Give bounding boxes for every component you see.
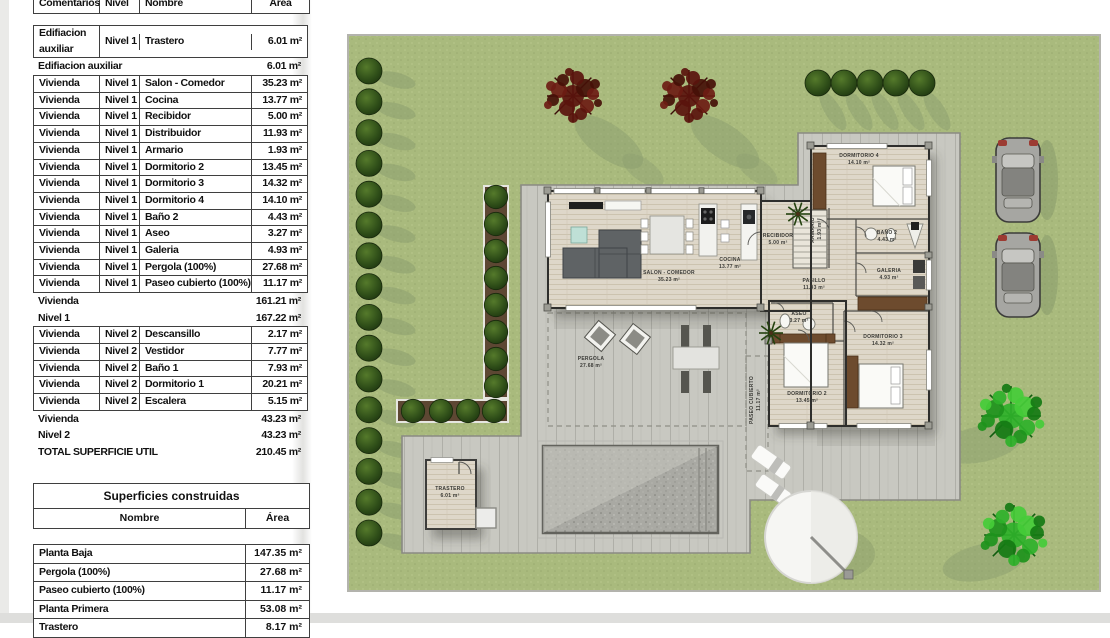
page-edge-left: [0, 0, 9, 623]
table-row: ViviendaNivel 1Armario1.93 m²: [34, 142, 307, 159]
col-area: Área: [252, 0, 309, 13]
table-cell: Galeria: [140, 243, 252, 259]
table-cell: Aseo: [140, 226, 252, 242]
table-cell: Descansillo: [140, 327, 252, 343]
table-cell: Nivel 1: [100, 93, 140, 109]
table-cell: Vivienda: [34, 226, 100, 242]
col-area: Área: [246, 509, 309, 528]
table-cell: Vivienda: [34, 276, 100, 292]
table-cell: Dormitorio 2: [140, 160, 252, 176]
table-cell: Vivienda: [34, 344, 100, 360]
table-cell: Baño 1: [140, 361, 252, 377]
constructed-table-header: Superficies construidas Nombre Área: [33, 483, 310, 529]
table-row: ViviendaNivel 2Descansillo2.17 m²: [34, 327, 307, 343]
table-group: ViviendaNivel 1Salon - Comedor35.23 m²Vi…: [33, 75, 308, 293]
table-cell: Vivienda: [34, 176, 100, 192]
table-cell: 5.00 m²: [252, 109, 309, 125]
table-cell: Nivel 1: [100, 210, 140, 226]
constructed-table-title: Superficies construidas: [34, 484, 309, 509]
table-cell: Dormitorio 4: [140, 193, 252, 209]
subtotal-label: Nivel 2: [33, 427, 251, 444]
table-cell: 4.93 m²: [252, 243, 309, 259]
site-plan: SALON - COMEDOR35.23 m² COCINA13.77 m² R…: [347, 34, 1101, 592]
table-cell: Vestidor: [140, 344, 252, 360]
table-row: Trastero8.17 m²: [34, 618, 309, 637]
table-cell: 8.17 m²: [246, 619, 309, 637]
subtotal-value: 43.23 m²: [251, 411, 308, 428]
table-cell: Dormitorio 3: [140, 176, 252, 192]
table-cell: 147.35 m²: [246, 545, 309, 563]
table-cell: Nivel 1: [100, 193, 140, 209]
table-cell: Nivel 1: [100, 76, 140, 92]
table-group: Edifiacion auxiliarNivel 1Trastero6.01 m…: [33, 25, 308, 58]
table-row: Pergola (100%)27.68 m²: [34, 563, 309, 582]
table-cell: Baño 2: [140, 210, 252, 226]
table-cell: Vivienda: [34, 377, 100, 393]
table-cell: Nivel 1: [100, 109, 140, 125]
table-cell: Vivienda: [34, 243, 100, 259]
table-group: ViviendaNivel 2Descansillo2.17 m²Viviend…: [33, 326, 308, 411]
table-cell: 13.77 m²: [252, 93, 309, 109]
table-cell: 6.01 m²: [252, 34, 309, 50]
table-row: Planta Primera53.08 m²: [34, 600, 309, 619]
table-cell: Vivienda: [34, 93, 100, 109]
table-cell: Vivienda: [34, 210, 100, 226]
car-1: [992, 138, 1058, 222]
table-cell: Salon - Comedor: [140, 76, 252, 92]
col-comentarios: Comentarios: [34, 0, 100, 13]
table-cell: Nivel 2: [100, 394, 140, 410]
subtotal-row: TOTAL SUPERFICIE UTIL210.45 m²: [33, 444, 308, 461]
table-cell: Nivel 2: [100, 327, 140, 343]
table-cell: 35.23 m²: [252, 76, 309, 92]
table-cell: 7.77 m²: [252, 344, 309, 360]
table-row: ViviendaNivel 2Dormitorio 120.21 m²: [34, 376, 307, 393]
table-cell: 3.27 m²: [252, 226, 309, 242]
trastero-building: [426, 460, 476, 529]
table-cell: 11.17 m²: [246, 582, 309, 600]
table-row: ViviendaNivel 2Vestidor7.77 m²: [34, 343, 307, 360]
subtotal-value: 167.22 m²: [251, 310, 308, 327]
table-cell: 20.21 m²: [252, 377, 309, 393]
col-nombre: Nombre: [34, 509, 246, 528]
table-row: ViviendaNivel 1Paseo cubierto (100%)11.1…: [34, 275, 307, 292]
table-cell: Trastero: [34, 619, 246, 637]
table-cell: Nivel 1: [100, 260, 140, 276]
table-cell: Dormitorio 1: [140, 377, 252, 393]
table-cell: Trastero: [140, 34, 252, 50]
page: { "surface_table": { "headers": {"coment…: [0, 0, 1110, 623]
table-cell: Vivienda: [34, 260, 100, 276]
subtotal-label: Vivienda: [33, 293, 251, 310]
table-cell: Nivel 1: [100, 176, 140, 192]
table-cell: 53.08 m²: [246, 601, 309, 619]
table-cell: Nivel 2: [100, 344, 140, 360]
table-cell: 2.17 m²: [252, 327, 309, 343]
table-cell: 27.68 m²: [246, 564, 309, 582]
table-row: ViviendaNivel 1Baño 24.43 m²: [34, 209, 307, 226]
subtotal-row: Edifiacion auxiliar6.01 m²: [33, 58, 308, 75]
table-cell: 14.32 m²: [252, 176, 309, 192]
table-cell: 11.93 m²: [252, 126, 309, 142]
table-cell: Planta Primera: [34, 601, 246, 619]
subtotal-label: Edifiacion auxiliar: [33, 58, 251, 75]
subtotal-label: Vivienda: [33, 411, 251, 428]
table-row: ViviendaNivel 1Dormitorio 414.10 m²: [34, 192, 307, 209]
subtotal-row: Nivel 1167.22 m²: [33, 310, 308, 327]
table-cell: Nivel 1: [100, 126, 140, 142]
subtotal-value: 161.21 m²: [251, 293, 308, 310]
table-row: ViviendaNivel 2Baño 17.93 m²: [34, 360, 307, 377]
table-row: ViviendaNivel 1Distribuidor11.93 m²: [34, 125, 307, 142]
table-row: Edifiacion auxiliarNivel 1Trastero6.01 m…: [34, 26, 307, 57]
col-nombre: Nombre: [140, 0, 252, 13]
table-cell: 5.15 m²: [252, 394, 309, 410]
table-cell: 13.45 m²: [252, 160, 309, 176]
table-cell: Edifiacion auxiliar: [34, 26, 100, 57]
table-cell: Vivienda: [34, 394, 100, 410]
table-cell: Vivienda: [34, 76, 100, 92]
table-cell: 4.43 m²: [252, 210, 309, 226]
table-row: Planta Baja147.35 m²: [34, 545, 309, 563]
table-row: ViviendaNivel 2Escalera5.15 m²: [34, 393, 307, 410]
table-cell: 11.17 m²: [252, 276, 309, 292]
table-cell: Paseo cubierto (100%): [34, 582, 246, 600]
subtotal-row: Vivienda43.23 m²: [33, 411, 308, 428]
subtotal-value: 210.45 m²: [251, 444, 308, 461]
table-cell: Nivel 2: [100, 377, 140, 393]
table-cell: 14.10 m²: [252, 193, 309, 209]
table-row: Paseo cubierto (100%)11.17 m²: [34, 581, 309, 600]
table-cell: 1.93 m²: [252, 143, 309, 159]
table-row: ViviendaNivel 1Dormitorio 213.45 m²: [34, 159, 307, 176]
table-cell: Vivienda: [34, 327, 100, 343]
table-cell: Nivel 1: [100, 143, 140, 159]
subtotal-row: Nivel 243.23 m²: [33, 427, 308, 444]
table-cell: 27.68 m²: [252, 260, 309, 276]
table-cell: Pergola (100%): [140, 260, 252, 276]
table-cell: Paseo cubierto (100%): [140, 276, 252, 292]
surface-table-header: Comentarios Nivel Nombre Área: [33, 0, 310, 14]
table-cell: Pergola (100%): [34, 564, 246, 582]
table-cell: Distribuidor: [140, 126, 252, 142]
subtotal-label: Nivel 1: [33, 310, 251, 327]
subtotal-row: Vivienda161.21 m²: [33, 293, 308, 310]
table-cell: Nivel 1: [100, 276, 140, 292]
constructed-table: Planta Baja147.35 m²Pergola (100%)27.68 …: [33, 544, 310, 638]
table-cell: Vivienda: [34, 109, 100, 125]
subtotal-label: TOTAL SUPERFICIE UTIL: [33, 444, 251, 461]
table-cell: Nivel 1: [100, 243, 140, 259]
table-cell: Armario: [140, 143, 252, 159]
table-row: ViviendaNivel 1Galeria4.93 m²: [34, 242, 307, 259]
table-row: ViviendaNivel 1Cocina13.77 m²: [34, 92, 307, 109]
subtotal-value: 6.01 m²: [251, 58, 308, 75]
table-cell: Recibidor: [140, 109, 252, 125]
table-cell: 7.93 m²: [252, 361, 309, 377]
table-cell: Vivienda: [34, 126, 100, 142]
site-plan-svg: [347, 34, 1101, 592]
car-2: [992, 233, 1058, 317]
table-cell: Planta Baja: [34, 545, 246, 563]
table-row: ViviendaNivel 1Recibidor5.00 m²: [34, 108, 307, 125]
table-row: ViviendaNivel 1Salon - Comedor35.23 m²: [34, 76, 307, 92]
table-cell: Cocina: [140, 93, 252, 109]
table-cell: Nivel 1: [100, 34, 140, 50]
table-cell: Vivienda: [34, 361, 100, 377]
table-row: ViviendaNivel 1Aseo3.27 m²: [34, 225, 307, 242]
table-cell: Nivel 1: [100, 160, 140, 176]
subtotal-value: 43.23 m²: [251, 427, 308, 444]
surface-table: Edifiacion auxiliarNivel 1Trastero6.01 m…: [33, 25, 308, 461]
table-row: ViviendaNivel 1Pergola (100%)27.68 m²: [34, 259, 307, 276]
table-cell: Vivienda: [34, 160, 100, 176]
table-row: ViviendaNivel 1Dormitorio 314.32 m²: [34, 175, 307, 192]
table-cell: Nivel 2: [100, 361, 140, 377]
table-cell: Vivienda: [34, 143, 100, 159]
table-cell: Escalera: [140, 394, 252, 410]
table-cell: Nivel 1: [100, 226, 140, 242]
pool: [538, 441, 723, 538]
table-cell: Vivienda: [34, 193, 100, 209]
col-nivel: Nivel: [100, 0, 140, 13]
